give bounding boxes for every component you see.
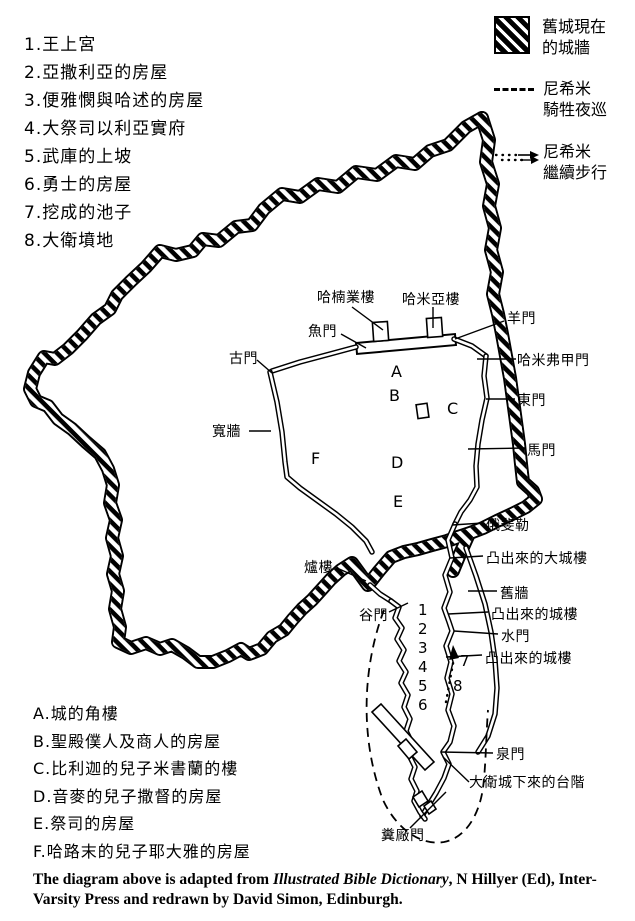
- label-old-wall: 舊牆: [500, 583, 529, 603]
- key-item: C.比利迦的兒子米書蘭的樓: [33, 755, 251, 783]
- numbered-key-list: 1.王上宮 2.亞撒利亞的房屋 3.便雅憫與哈述的房屋 4.大祭司以利亞實府 5…: [24, 31, 204, 255]
- area-letter-e: E: [393, 492, 403, 511]
- label-dung-gate: 糞廠門: [381, 825, 425, 845]
- label-projecting-great-tower: 凸出來的大城樓: [486, 548, 588, 568]
- area-letter-f: F: [311, 449, 320, 468]
- legend-item-old-wall: 舊城現在 的城牆: [494, 16, 606, 58]
- label-east-gate: 東門: [517, 390, 546, 410]
- key-item: 4.大祭司以利亞實府: [24, 115, 204, 143]
- label-water-gate: 水門: [501, 626, 530, 646]
- route-number-4: 4: [418, 658, 428, 676]
- dotted-arrow-icon: [494, 148, 540, 162]
- key-item: 1.王上宮: [24, 31, 204, 59]
- area-letter-a: A: [391, 362, 402, 381]
- label-broad-wall: 寬牆: [212, 421, 241, 441]
- meshullam-tower-block: [416, 403, 429, 418]
- label-ophel: 俄斐勒: [486, 515, 530, 535]
- route-number-8: 8: [453, 677, 463, 695]
- label-valley-gate: 谷門: [359, 605, 388, 625]
- label-stairs-city-of-david: 大衛城下來的台階: [469, 772, 585, 792]
- dashed-line-icon: [494, 88, 534, 91]
- label-tower-hananel: 哈楠業樓: [317, 287, 375, 307]
- legend-label: 騎牲夜巡: [543, 99, 607, 120]
- route-number-3: 3: [418, 639, 428, 657]
- route-number-1: 1: [418, 601, 428, 619]
- lettered-key-list: A.城的角樓 B.聖殿僕人及商人的房屋 C.比利迦的兒子米書蘭的樓 D.音麥的兒…: [33, 700, 251, 865]
- scanned-map-page: 1.王上宮 2.亞撒利亞的房屋 3.便雅憫與哈述的房屋 4.大祭司以利亞實府 5…: [0, 0, 635, 921]
- key-item: 3.便雅憫與哈述的房屋: [24, 87, 204, 115]
- key-item: E.祭司的房屋: [33, 810, 251, 838]
- key-item: A.城的角樓: [33, 700, 251, 728]
- key-item: 6.勇士的房屋: [24, 171, 204, 199]
- label-tower-hammeah: 哈米亞樓: [402, 289, 460, 309]
- label-projecting-tower-upper: 凸出來的城樓: [491, 604, 578, 624]
- spur-buildings: [372, 704, 436, 814]
- label-hammiphkad-gate: 哈米弗甲門: [517, 350, 590, 370]
- key-item: 5.武庫的上坡: [24, 143, 204, 171]
- label-projecting-tower-lower: 凸出來的城樓: [485, 648, 572, 668]
- key-item: 7.挖成的池子: [24, 199, 204, 227]
- caption-book-title: Illustrated Bible Dictionary: [273, 871, 449, 888]
- route-number-7: 7: [460, 652, 470, 670]
- key-item: 2.亞撒利亞的房屋: [24, 59, 204, 87]
- label-fountain-gate: 泉門: [496, 744, 525, 764]
- label-sheep-gate: 羊門: [507, 308, 536, 328]
- legend-item-on-foot: 尼希米 繼續步行: [494, 141, 607, 183]
- rebuilt-wall-lines: [270, 339, 497, 819]
- area-letter-d: D: [391, 453, 403, 472]
- label-horse-gate: 馬門: [527, 440, 556, 460]
- hatched-swatch-icon: [494, 16, 530, 54]
- route-number-6: 6: [418, 696, 428, 714]
- legend-label: 尼希米: [543, 78, 607, 99]
- area-letter-b: B: [389, 386, 400, 405]
- route-number-5: 5: [418, 677, 428, 695]
- label-fish-gate: 魚門: [308, 321, 337, 341]
- tower-hammeah-block: [426, 317, 442, 337]
- label-old-gate: 古門: [229, 348, 258, 368]
- key-item: B.聖殿僕人及商人的房屋: [33, 728, 251, 756]
- key-item: 8.大衛墳地: [24, 227, 204, 255]
- area-letter-c: C: [447, 399, 458, 418]
- key-item: F.哈路末的兒子耶大雅的房屋: [33, 838, 251, 866]
- caption-text: The diagram above is adapted from: [33, 871, 273, 888]
- legend-label: 尼希米: [543, 141, 607, 162]
- legend-label: 的城牆: [542, 37, 606, 58]
- legend-label: 繼續步行: [543, 162, 607, 183]
- legend-label: 舊城現在: [542, 16, 606, 37]
- label-furnace-tower: 爐樓: [304, 557, 333, 577]
- key-item: D.音麥的兒子撒督的房屋: [33, 783, 251, 811]
- source-caption: The diagram above is adapted from Illust…: [33, 870, 611, 909]
- legend-item-night-ride: 尼希米 騎牲夜巡: [494, 78, 607, 120]
- route-number-2: 2: [418, 620, 428, 638]
